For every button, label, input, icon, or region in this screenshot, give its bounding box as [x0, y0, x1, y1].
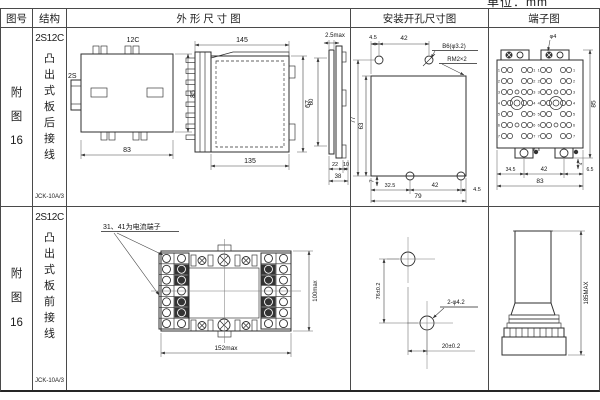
dim-100max: 100max [313, 280, 319, 301]
relay-side-silhouette: 185MAX [489, 207, 599, 389]
dim-6-5: 6.5 [587, 167, 594, 173]
dim-20: 20±0.2 [442, 344, 461, 350]
relay-model: JCK-10A/3 [35, 194, 64, 200]
svg-text:7: 7 [498, 135, 500, 139]
dim-term-42: 42 [541, 167, 548, 173]
panel-cutout: 4.5 42 B6(φ3.2) RM2×2 77 [351, 35, 481, 203]
svg-text:3: 3 [533, 91, 535, 95]
dim-tab-4: 4 [578, 162, 583, 165]
svg-text:5: 5 [533, 113, 535, 117]
dim-145: 145 [236, 37, 248, 44]
svg-text:5: 5 [573, 113, 575, 117]
dim-76: 76±0.2 [376, 283, 382, 300]
svg-text:2: 2 [538, 80, 540, 84]
dim-plate-height: 85 [591, 100, 598, 108]
front-terminal-view: 31、41为电流端子 [101, 222, 319, 357]
svg-text:8: 8 [533, 148, 535, 152]
structure-type: 凸出式板后接线 [42, 52, 57, 164]
structure-cell-row1: 2S12C 凸出式板后接线 JCK-10A/3 [33, 28, 67, 207]
dim-32-5: 32.5 [385, 183, 396, 189]
outline-cell-row2: 31、41为电流端子 [67, 207, 351, 390]
structure-code: 2S12C [35, 33, 64, 44]
svg-text:3: 3 [538, 91, 540, 95]
svg-text:7: 7 [573, 135, 575, 139]
svg-text:7: 7 [538, 135, 540, 139]
dim-top-42: 42 [400, 35, 408, 42]
svg-text:6: 6 [538, 124, 540, 128]
mounting-cell-row2: 76±0.2 2-φ4.2 20±0.2 [351, 207, 489, 390]
relay-model: JCK-10A/3 [35, 378, 64, 384]
dim-bottom-4-5: 4.5 [473, 187, 481, 193]
dim-term-83: 83 [536, 178, 544, 185]
dim-79: 79 [414, 193, 422, 200]
dim-thickness: 2.5max [325, 33, 345, 39]
dim-22: 22 [332, 162, 338, 168]
dim-34-5: 34.5 [506, 167, 516, 173]
dim-side-code: 2S [68, 73, 77, 80]
thread-spec-label: RM2×2 [447, 57, 467, 63]
terminal-cell-row1: φ4 11112222333 [489, 28, 599, 207]
svg-text:2: 2 [533, 80, 535, 84]
dim-185max: 185MAX [584, 281, 590, 304]
side-view: 145 135 67 [186, 37, 312, 170]
svg-text:3: 3 [573, 91, 575, 95]
svg-text:6: 6 [533, 124, 535, 128]
current-terminal-note: 31、41为电流端子 [103, 222, 161, 231]
dim-152max: 152max [214, 345, 238, 352]
hole-spec-label: 2-φ4.2 [447, 300, 465, 306]
dim-77: 77 [351, 116, 357, 123]
drawing-table: 图号 结构 外 形 尺 寸 图 安装开孔尺寸图 端子图 附图16 2S12C 凸… [0, 8, 600, 392]
mounting-hole-drawing-row1: 4.5 42 B6(φ3.2) RM2×2 77 [351, 28, 489, 206]
mounting-hole-drawing-row2: 76±0.2 2-φ4.2 20±0.2 [351, 207, 489, 389]
edge-view: 2.5max 60 22 10 [309, 33, 349, 185]
svg-text:3: 3 [498, 91, 500, 95]
dim-phi4: φ4 [550, 34, 557, 40]
structure-type: 凸出式板前接线 [42, 231, 57, 343]
dim-bottom-42: 42 [432, 183, 439, 189]
dim-38: 38 [335, 174, 342, 180]
svg-text:1: 1 [538, 69, 540, 73]
svg-text:8: 8 [538, 148, 540, 152]
svg-text:1: 1 [573, 69, 575, 73]
outline-drawing-rear-connection: 12C 2S 85 83 [67, 28, 351, 206]
svg-text:6: 6 [498, 124, 500, 128]
rear-view: 12C 2S 85 83 [68, 37, 197, 159]
dim-top-4-5: 4.5 [369, 35, 377, 41]
dim-7: 7 [370, 179, 376, 182]
terminal-plate: φ4 11112222333 [497, 34, 598, 190]
relay-body: 185MAX [502, 231, 590, 355]
terminal-hole-grid: 111122223333444455556666777788 [498, 67, 575, 152]
svg-text:6: 6 [573, 124, 575, 128]
datasheet-page: 单位：mm 图号 结构 外 形 尺 寸 图 安装开孔尺寸图 端子图 附图16 2… [0, 0, 600, 400]
svg-text:5: 5 [498, 113, 500, 117]
svg-text:1: 1 [533, 69, 535, 73]
svg-text:1: 1 [498, 69, 500, 73]
hole-spec-label: B6(φ3.2) [442, 44, 466, 50]
svg-text:4: 4 [498, 102, 500, 106]
outline-cell-row1: 12C 2S 85 83 [67, 28, 351, 207]
svg-text:2: 2 [498, 80, 500, 84]
svg-text:4: 4 [573, 102, 575, 106]
terminal-plate-drawing: φ4 11112222333 [489, 28, 599, 206]
mounting-cell-row1: 4.5 42 B6(φ3.2) RM2×2 77 [351, 28, 489, 207]
header-outline-dimensions: 外 形 尺 寸 图 [67, 9, 351, 28]
figure-number: 附图16 [8, 81, 25, 153]
header-terminal-diagram: 端子图 [489, 9, 599, 28]
dim-10: 10 [343, 162, 349, 168]
dim-60: 60 [309, 98, 315, 105]
outline-drawing-front-connection: 31、41为电流端子 [67, 207, 351, 389]
structure-cell-row2: 2S12C 凸出式板前接线 JCK-10A/3 [33, 207, 67, 390]
svg-text:7: 7 [533, 135, 535, 139]
dim-63: 63 [359, 122, 365, 129]
svg-text:5: 5 [538, 113, 540, 117]
dim-case-code: 12C [127, 37, 140, 44]
figure-no-cell-row2: 附图16 [1, 207, 33, 390]
svg-text:4: 4 [538, 102, 540, 106]
header-mounting-holes: 安装开孔尺寸图 [351, 9, 489, 28]
svg-text:4: 4 [533, 102, 535, 106]
terminal-cell-row2: 185MAX [489, 207, 599, 390]
header-structure: 结构 [33, 9, 67, 28]
svg-text:2: 2 [573, 80, 575, 84]
dim-135: 135 [244, 158, 256, 165]
structure-code: 2S12C [35, 212, 64, 223]
header-figure-no: 图号 [1, 9, 33, 28]
dim-width-83: 83 [123, 147, 131, 154]
figure-number: 附图16 [8, 262, 25, 334]
figure-no-cell-row1: 附图16 [1, 28, 33, 207]
two-hole-layout: 76±0.2 2-φ4.2 20±0.2 [376, 237, 478, 369]
